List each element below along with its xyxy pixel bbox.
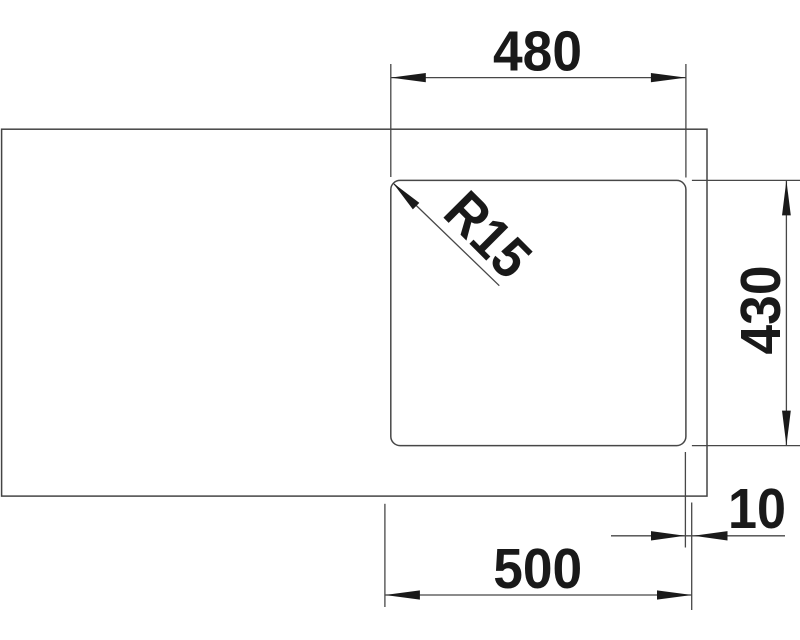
svg-text:R15: R15 xyxy=(432,179,544,291)
svg-text:10: 10 xyxy=(728,477,786,541)
svg-text:500: 500 xyxy=(493,537,582,601)
svg-text:430: 430 xyxy=(729,266,793,355)
svg-text:480: 480 xyxy=(493,20,582,84)
